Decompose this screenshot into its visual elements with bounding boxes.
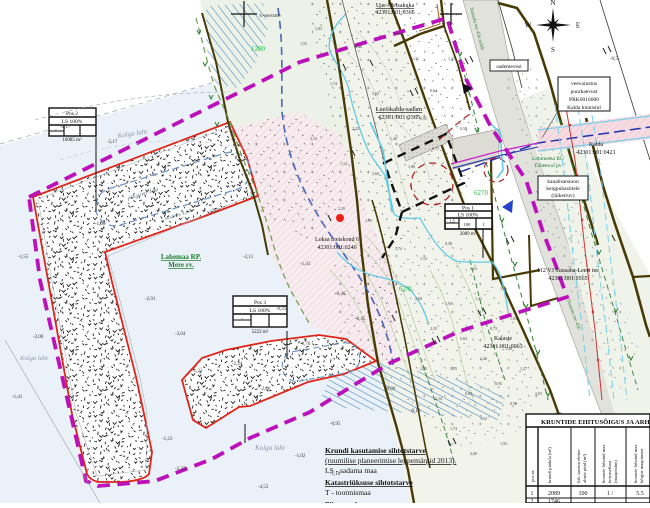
svg-text:16085 m²: 16085 m²: [62, 137, 82, 143]
svg-text:Krundi kasutamise sihtotstarve: Krundi kasutamise sihtotstarve: [325, 446, 427, 455]
svg-text:1.: 1.: [482, 222, 485, 227]
svg-text:-1,41: -1,41: [12, 395, 23, 400]
svg-text:-0,99: -0,99: [385, 387, 396, 392]
svg-text:-0,25: -0,25: [276, 307, 287, 312]
svg-text:korruselisus: korruselisus: [607, 461, 612, 483]
svg-text:krundi pindala (m²): krundi pindala (m²): [547, 447, 552, 483]
svg-text:100: 100: [464, 222, 472, 227]
svg-text:-0,95: -0,95: [330, 422, 341, 427]
svg-text:-2,17: -2,17: [107, 140, 118, 145]
svg-text:Loksa metskond 6: Loksa metskond 6: [315, 237, 359, 243]
svg-text:kõrgus maapinnast: kõrgus maapinnast: [639, 448, 644, 483]
svg-text:-2,06: -2,06: [260, 387, 271, 392]
svg-text:-3,04: -3,04: [175, 332, 186, 337]
svg-text:Lehtmetsa RÜ: Lehtmetsa RÜ: [532, 155, 564, 162]
svg-text:Lahemaa RP.: Lahemaa RP.: [161, 253, 201, 261]
svg-text:aluste pind (m²): aluste pind (m²): [582, 453, 587, 483]
svg-text:kanalisatsioon: kanalisatsioon: [547, 179, 579, 185]
svg-text:Lähtesoo pv: Lähtesoo pv: [534, 163, 561, 169]
svg-text:Mere rv.: Mere rv.: [168, 261, 194, 269]
svg-text:Pos 3: Pos 3: [254, 300, 266, 306]
svg-text:veevarustus: veevarustus: [571, 81, 597, 87]
svg-text:-1,70: -1,70: [300, 342, 311, 347]
svg-text:2089: 2089: [548, 491, 560, 497]
svg-text:W: W: [525, 22, 532, 30]
svg-text:E: E: [576, 22, 580, 30]
svg-text:1: 1: [531, 491, 534, 497]
svg-text:(täiketruv): (täiketruv): [551, 192, 574, 199]
svg-text:-1,41: -1,41: [300, 262, 311, 267]
svg-text:N: N: [550, 0, 555, 7]
svg-text:T - tootmismaa: T - tootmismaa: [325, 488, 371, 497]
svg-text:-0,46: -0,46: [335, 292, 346, 297]
svg-text:Pos 1: Pos 1: [462, 206, 474, 212]
svg-text:lub. suurim ehitus-: lub. suurim ehitus-: [576, 448, 581, 483]
svg-text:PRK0016000: PRK0016000: [569, 97, 599, 103]
svg-text:LS - sadama maa: LS - sadama maa: [325, 466, 378, 475]
svg-text:Uue-Metsakuka: Uue-Metsakuka: [376, 3, 415, 9]
svg-text:Katastriüksuse sihtotstarve: Katastriüksuse sihtotstarve: [325, 478, 413, 487]
svg-text:42301:001:0240: 42301:001:0240: [317, 245, 356, 251]
svg-text:-1,60: -1,60: [95, 222, 106, 227]
svg-text:-2,11: -2,11: [243, 255, 254, 260]
svg-text:(maapealne): (maapealne): [613, 460, 618, 483]
svg-text:-1,55: -1,55: [18, 255, 29, 260]
svg-text:LS 100%: LS 100%: [250, 308, 271, 314]
svg-text:-2,08: -2,08: [33, 335, 44, 340]
svg-text:Kalda kinnistul: Kalda kinnistul: [567, 105, 601, 111]
svg-text:42301:001:0366: 42301:001:0366: [375, 10, 414, 16]
svg-text:Leesikalda sadam: Leesikalda sadam: [376, 106, 422, 113]
svg-text:X=6600400: X=6600400: [259, 13, 281, 18]
svg-text:KRUNTIDE EHITUSÕIGUS JA ARHITE: KRUNTIDE EHITUSÕIGUS JA ARHITEKTUU: [541, 418, 650, 426]
svg-text:hoonete lubatud max: hoonete lubatud max: [633, 444, 638, 483]
svg-text:sademevesi: sademevesi: [496, 64, 522, 70]
svg-text:-2,91: -2,91: [145, 297, 156, 302]
svg-text:1746: 1746: [548, 499, 560, 503]
svg-text:2089 m²: 2089 m²: [460, 231, 477, 237]
svg-text:42301:001:0421: 42301:001:0421: [576, 150, 615, 156]
svg-text:-0,19: -0,19: [410, 409, 421, 414]
svg-text:-0,45: -0,45: [355, 317, 366, 322]
svg-text:5.5: 5.5: [636, 491, 644, 497]
svg-text:5222 m²: 5222 m²: [252, 329, 269, 335]
svg-text:100: 100: [579, 491, 588, 497]
svg-text:62/0: 62/0: [399, 285, 412, 293]
svg-text:6270: 6270: [474, 189, 489, 197]
svg-text:S: S: [551, 46, 555, 54]
svg-text:-1,23: -1,23: [162, 437, 173, 442]
svg-text:1 /: 1 /: [607, 491, 614, 497]
svg-text:42301:001:0063: 42301:001:0063: [483, 344, 522, 350]
svg-text:Kalaste: Kalaste: [494, 336, 512, 342]
svg-text:42301:001:0565: 42301:001:0565: [548, 276, 587, 282]
svg-text:LS 100%: LS 100%: [458, 213, 479, 219]
svg-text:Kolga laht: Kolga laht: [19, 355, 48, 362]
svg-text:-1,21: -1,21: [192, 369, 203, 374]
svg-text:hoonete lubatud max: hoonete lubatud max: [601, 444, 606, 483]
svg-text:-4,53: -4,53: [258, 485, 269, 490]
svg-text:(ruumilise planeerimise leppem: (ruumilise planeerimise leppemärgid 2013…: [325, 456, 457, 465]
svg-text:Pos 2: Pos 2: [66, 111, 78, 117]
svg-text:-1,02: -1,02: [295, 454, 306, 459]
svg-text:kergpuhastitele: kergpuhastitele: [546, 186, 580, 192]
svg-text:112 VJ Suusaha-Leesi tee: 112 VJ Suusaha-Leesi tee: [537, 268, 599, 274]
svg-text:-0,5: -0,5: [610, 57, 618, 62]
svg-text:-2,17: -2,17: [60, 125, 71, 130]
svg-text:Kalda: Kalda: [589, 142, 604, 148]
svg-text:-2,07: -2,07: [210, 209, 221, 214]
svg-text:-2,24: -2,24: [232, 362, 243, 367]
svg-text:Kolga laht: Kolga laht: [254, 444, 286, 452]
svg-text:-3,37: -3,37: [175, 467, 186, 472]
svg-text:pos nr.: pos nr.: [530, 470, 535, 482]
svg-text:42301:001:0365: 42301:001:0365: [378, 114, 421, 121]
svg-text:2: 2: [531, 499, 534, 503]
svg-text:puurkaevust: puurkaevust: [571, 89, 598, 95]
svg-text:1200: 1200: [251, 45, 266, 53]
